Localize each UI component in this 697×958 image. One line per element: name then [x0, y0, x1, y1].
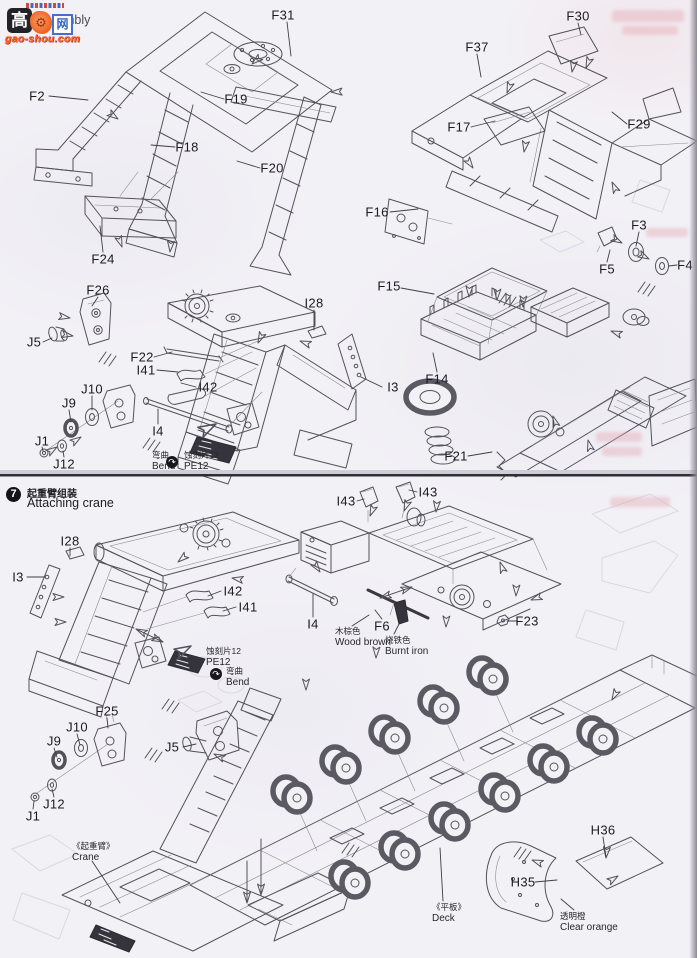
annotation-text-zh: 木棕色 — [335, 627, 391, 637]
part-label-j1: J1 — [35, 434, 49, 449]
print-bleed-mark — [610, 497, 670, 507]
annotation-burnt-iron: 烧铁色Burnt iron — [385, 636, 428, 657]
part-label-j9: J9 — [47, 734, 61, 749]
step7-crane — [62, 688, 283, 952]
part-label-f5: F5 — [599, 262, 615, 277]
print-bleed-mark — [596, 432, 642, 442]
annotation-text-zh: 《起重臂》 — [72, 842, 115, 852]
hatch-marks — [99, 282, 655, 861]
part-label-f30: F30 — [566, 9, 589, 24]
part-label-i3: I3 — [387, 380, 398, 395]
section-divider — [0, 470, 697, 478]
instruction-sheet-page: F31F2F19F18F20F24F26J5F22I41I42I4J10J9J1… — [0, 0, 697, 958]
annotation-text-zh: 透明橙 — [560, 912, 618, 922]
annotation-text-zh: 蚀刻片12 — [206, 647, 241, 657]
annotation-text-en: Wood brown — [335, 637, 391, 648]
bleed-through-ghosts — [12, 180, 678, 939]
print-bleed-mark — [622, 26, 678, 35]
part-label-i43: I43 — [419, 485, 438, 500]
part-label-f15: F15 — [377, 279, 400, 294]
print-bleed-mark — [602, 447, 642, 456]
part-label-i41: I41 — [137, 363, 156, 378]
annotation-bend: 弯曲Bend — [226, 667, 249, 688]
annotation-text-en: Bend — [226, 677, 249, 688]
watermark-char-right: 网 — [52, 14, 73, 35]
step6-bracket-f26-j5 — [47, 293, 111, 345]
annotation-crane: 《起重臂》Crane — [72, 842, 115, 863]
part-label-i4: I4 — [152, 424, 163, 439]
part-label-f37: F37 — [465, 40, 488, 55]
watermark-char-left: 高 — [7, 8, 32, 33]
part-label-i28: I28 — [61, 534, 80, 549]
annotation-text-zh: 《平板》 — [432, 903, 466, 913]
part-label-f29: F29 — [627, 117, 650, 132]
part-label-f2: F2 — [29, 89, 45, 104]
part-label-j10: J10 — [66, 720, 88, 735]
annotation-deck: 《平板》Deck — [432, 903, 466, 924]
part-label-f25: F25 — [95, 704, 118, 719]
bend-icon: ↷ — [210, 668, 222, 680]
watermark-gaoshou: 高 ⚙ 网 gao-shou.com — [3, 2, 98, 46]
annotation-pe12: 蚀刻片12PE12 — [206, 647, 241, 668]
part-label-f31: F31 — [271, 8, 294, 23]
bend-icon: ↷ — [166, 456, 178, 468]
part-label-i28: I28 — [305, 296, 324, 311]
watermark-site-text: gao-shou.com — [5, 33, 80, 45]
step6-deck-plate-assembly — [385, 27, 697, 244]
step6-crane-base-frame — [144, 286, 367, 484]
part-label-j12: J12 — [43, 797, 65, 812]
part-label-h36: H36 — [591, 823, 616, 838]
part-label-i42: I42 — [199, 380, 218, 395]
part-label-i43: I43 — [337, 494, 356, 509]
step6-chassis-f21 — [497, 377, 697, 480]
part-label-f20: F20 — [260, 161, 283, 176]
part-label-f19: F19 — [224, 92, 247, 107]
part-label-j5: J5 — [27, 335, 41, 350]
annotation-text-en: Deck — [432, 913, 455, 924]
annotation-clear-orange: 透明橙Clear orange — [560, 912, 618, 933]
part-label-i42: I42 — [224, 584, 243, 599]
part-label-i3: I3 — [12, 570, 23, 585]
part-label-f21: F21 — [444, 449, 467, 464]
part-label-i41: I41 — [239, 600, 258, 615]
part-label-h35: H35 — [511, 875, 536, 890]
part-label-f24: F24 — [91, 252, 114, 267]
annotation-text-zh: 烧铁色 — [385, 636, 428, 646]
part-label-j1: J1 — [26, 809, 40, 824]
step7-number-badge: 7 — [6, 487, 21, 502]
annotation-text-en: Clear orange — [560, 922, 618, 933]
annotation-text-en: Burnt iron — [385, 646, 428, 657]
annotation-wood-brown: 木棕色Wood brown — [335, 627, 391, 648]
print-bleed-mark — [646, 228, 688, 237]
annotation-text-en: Crane — [72, 852, 99, 863]
step6-box-f14-f15 — [421, 268, 547, 360]
hand-gear-icon: ⚙ — [30, 11, 52, 34]
part-label-f26: F26 — [86, 283, 109, 298]
step6-tray-and-hub — [531, 288, 649, 337]
annotation-text-zh: 蚀刻片12 — [184, 451, 219, 461]
step7-crane-base-assembly — [286, 482, 561, 630]
part-label-j5: J5 — [165, 740, 179, 755]
print-bleed-mark — [612, 10, 684, 22]
diagram-artwork — [0, 0, 697, 958]
part-label-f16: F16 — [365, 205, 388, 220]
scan-edge-shadow — [689, 0, 697, 958]
annotation-text-zh: 弯曲 — [226, 667, 249, 677]
step7-bracket-j5 — [181, 711, 239, 760]
part-label-f18: F18 — [175, 140, 198, 155]
step7-title-en: Attaching crane — [27, 496, 114, 510]
part-label-j10: J10 — [81, 382, 103, 397]
part-label-j9: J9 — [62, 396, 76, 411]
part-label-f3: F3 — [631, 218, 647, 233]
annotation-pe12: 蚀刻片12PE12 — [184, 451, 219, 472]
watermark-slogan-marks — [26, 3, 64, 8]
part-label-f23: F23 — [515, 614, 538, 629]
part-label-f17: F17 — [447, 120, 470, 135]
part-label-i4: I4 — [307, 617, 318, 632]
part-label-f14: F14 — [425, 372, 448, 387]
